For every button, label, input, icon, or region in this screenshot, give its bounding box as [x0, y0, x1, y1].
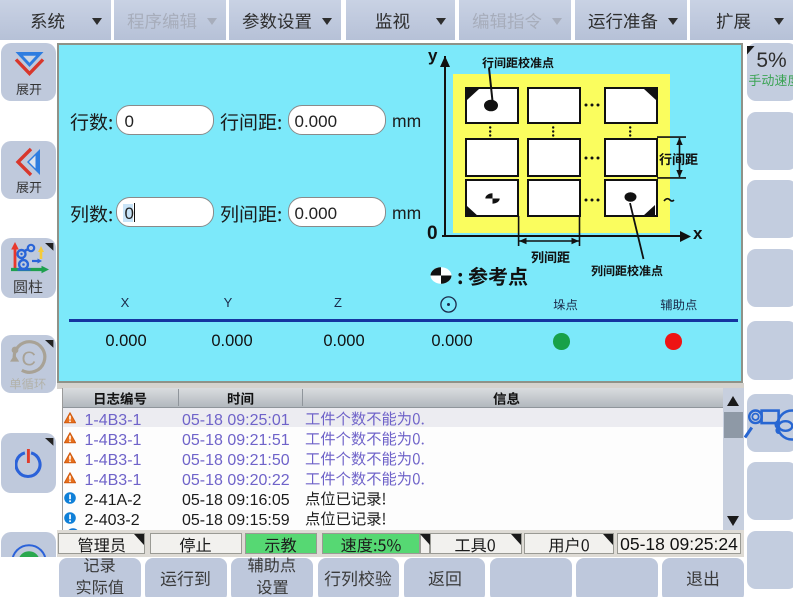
svg-text:C: C: [22, 349, 36, 371]
